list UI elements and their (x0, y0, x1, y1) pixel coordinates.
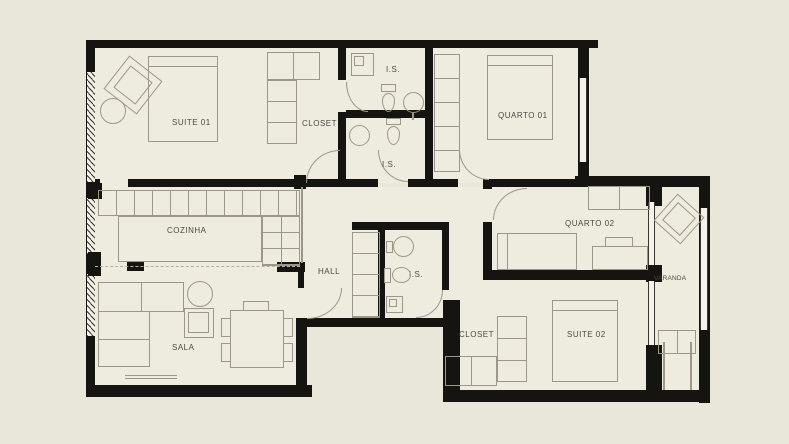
sala-chair-left-2 (221, 343, 231, 362)
wall-mid-d (408, 179, 458, 187)
suite02-bed (552, 300, 618, 382)
varanda-bench (658, 330, 696, 354)
quarto02-bed (497, 233, 577, 270)
is-hall-shower (386, 296, 403, 313)
stub-kitchen-hall-top (294, 175, 306, 189)
label-quarto02: QUARTO 02 (565, 220, 615, 228)
suite01-bed-headboard (148, 66, 218, 67)
is-top-sink-pedestal (412, 113, 414, 120)
is-top-shower (351, 53, 374, 76)
label-is-mid: I.S. (382, 161, 396, 169)
label-is-hall: I.S. (409, 271, 423, 279)
wall-bottom-right-wing (443, 390, 710, 402)
sala-side-table (187, 281, 213, 307)
suite01-bed (148, 56, 218, 142)
closet02-shelf-col (497, 316, 527, 382)
wall-bath3-top (352, 222, 449, 230)
label-hall: HALL (318, 268, 340, 276)
cozinha-counter-top (98, 190, 300, 216)
cozinha-counter-right (262, 216, 300, 266)
sala-chair-left-1 (221, 318, 231, 337)
label-closet02: CLOSET (459, 331, 494, 339)
hall-closet (352, 232, 380, 318)
window-varanda-right (700, 208, 708, 330)
quarto01-shelves (434, 54, 460, 172)
label-closet01: CLOSET (302, 120, 337, 128)
quarto02-bed-headboard (507, 233, 508, 270)
sala-chair-top (243, 301, 269, 311)
window-suite02-varanda (648, 281, 655, 345)
stub-left-pier (88, 252, 101, 276)
is-mid-sink (349, 125, 370, 146)
wall-quarto02-left-stub (483, 179, 492, 189)
wall-mid-c (341, 179, 378, 187)
quarto02-wardrobe (588, 186, 650, 210)
wall-bottom-sala (95, 385, 312, 397)
suite01-side-table (100, 98, 126, 124)
sala-sofa-back (98, 282, 184, 312)
wall-closet-bath-upper (338, 40, 346, 80)
wall-hall-bottom (302, 318, 449, 327)
sala-dining-table (230, 310, 284, 368)
window-quarto01 (579, 78, 587, 162)
label-is-top: I.S. (386, 66, 400, 74)
is-hall-counter (386, 241, 393, 253)
is-hall-toilet-bowl (392, 267, 411, 283)
floor-plan: SUITE 01 CLOSET I.S. I.S. QUARTO 01 COZI… (0, 0, 789, 444)
wall-sala-right (296, 318, 307, 396)
window-left-suite01 (87, 72, 95, 182)
closet01-shelf-top (267, 52, 320, 80)
quarto01-bed-headboard (487, 65, 553, 66)
label-sala: SALA (172, 344, 194, 352)
window-left-sala (87, 274, 95, 336)
is-mid-toilet-tank (386, 118, 401, 125)
window-quarto02-varanda (648, 202, 655, 265)
is-hall-toilet-tank (384, 268, 391, 283)
label-varanda: VARANDA (654, 276, 686, 283)
is-hall-sink (393, 236, 414, 257)
wall-quarto02-left (483, 222, 492, 270)
sala-chair-right-1 (283, 318, 293, 337)
wall-kitchen-hall-thin (301, 187, 303, 265)
closet01-shelf-col (267, 80, 297, 144)
closet02-shelf-row (445, 356, 497, 386)
wall-bath3-right (442, 230, 449, 290)
sala-armchair (184, 308, 214, 338)
is-top-sink (403, 92, 424, 113)
quarto01-bed (487, 55, 553, 140)
cozinha-island (118, 216, 262, 262)
quarto02-desk (592, 246, 648, 270)
sala-sofa-chaise (98, 311, 150, 367)
wall-mid-e (490, 179, 578, 187)
sala-chair-right-2 (283, 343, 293, 362)
wall-bath-quarto01 (425, 40, 433, 187)
wall-quarto02-bottom (483, 270, 662, 280)
suite02-bed-headboard (552, 310, 618, 311)
is-top-toilet-tank (381, 84, 396, 92)
quarto02-desk-chair (605, 237, 633, 247)
sala-tv-console (125, 375, 177, 379)
window-left-cozinha (87, 198, 95, 254)
divider-cozinha-sala (95, 266, 300, 267)
